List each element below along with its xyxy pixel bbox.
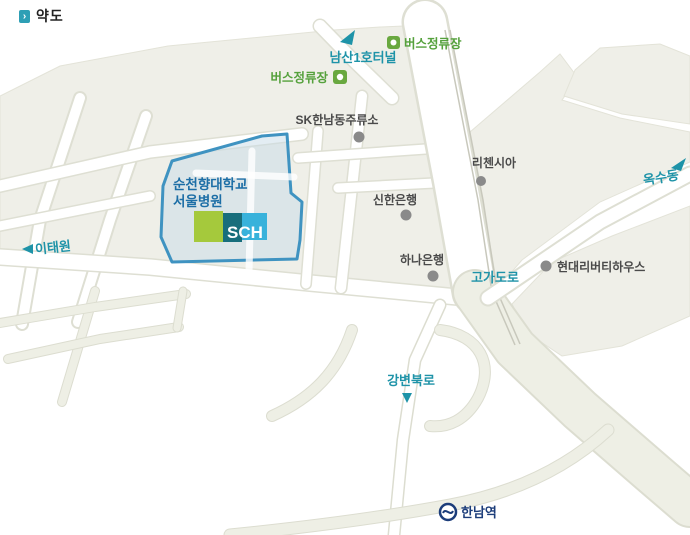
label-overpass: 고가도로 xyxy=(471,270,519,285)
label-namsan-tunnel: 남산1호터널 xyxy=(329,50,396,65)
hospital-name-line1: 순천향대학교 xyxy=(173,176,248,192)
hyundai-dot xyxy=(541,261,552,272)
logo-sch-text: SCH xyxy=(227,223,263,242)
richensia-dot xyxy=(476,176,486,186)
label-sk-station: SK한남동주류소 xyxy=(296,112,379,127)
label-hyundai-liberty-house: 현대리버티하우스 xyxy=(557,259,645,274)
label-shinhan-bank: 신한은행 xyxy=(373,192,417,207)
map-canvas: 순천향대학교 서울병원 SCH 남산1호터널 버스정류장 버스정류장 xyxy=(0,0,690,535)
label-bus-stop-top: 버스정류장 xyxy=(404,36,462,51)
road-ramp-loop xyxy=(430,330,485,426)
chevron-right-icon: › xyxy=(19,10,30,23)
bus-stop-icon xyxy=(333,70,347,84)
shinhan-bank-dot xyxy=(401,210,412,221)
label-hana-bank: 하나은행 xyxy=(400,252,444,267)
subway-station-icon xyxy=(440,504,456,520)
hospital-name-line2: 서울병원 xyxy=(173,193,223,209)
label-bus-stop-left: 버스정류장 xyxy=(270,70,328,85)
label-richensia: 리첸시아 xyxy=(472,155,516,170)
page-title: › 약도 xyxy=(19,6,64,26)
road-hospital-inner-v xyxy=(249,151,252,272)
road-hannam-station xyxy=(230,430,608,535)
road-sw-curve xyxy=(272,330,352,416)
map-page: › 약도 xyxy=(0,0,690,535)
road-casing xyxy=(272,330,352,416)
logo-green-block xyxy=(194,211,223,242)
hana-bank-dot xyxy=(428,271,439,282)
road-casing xyxy=(230,430,608,535)
road-sw-horizontal-2 xyxy=(8,327,179,359)
label-gangbyeon: 강변북로 xyxy=(387,373,435,388)
page-title-text: 약도 xyxy=(36,6,64,26)
bus-stop-icon xyxy=(387,36,400,49)
label-hannam-station: 한남역 xyxy=(461,505,497,520)
sch-logo: SCH xyxy=(194,211,267,242)
sk-station-dot xyxy=(354,132,365,143)
